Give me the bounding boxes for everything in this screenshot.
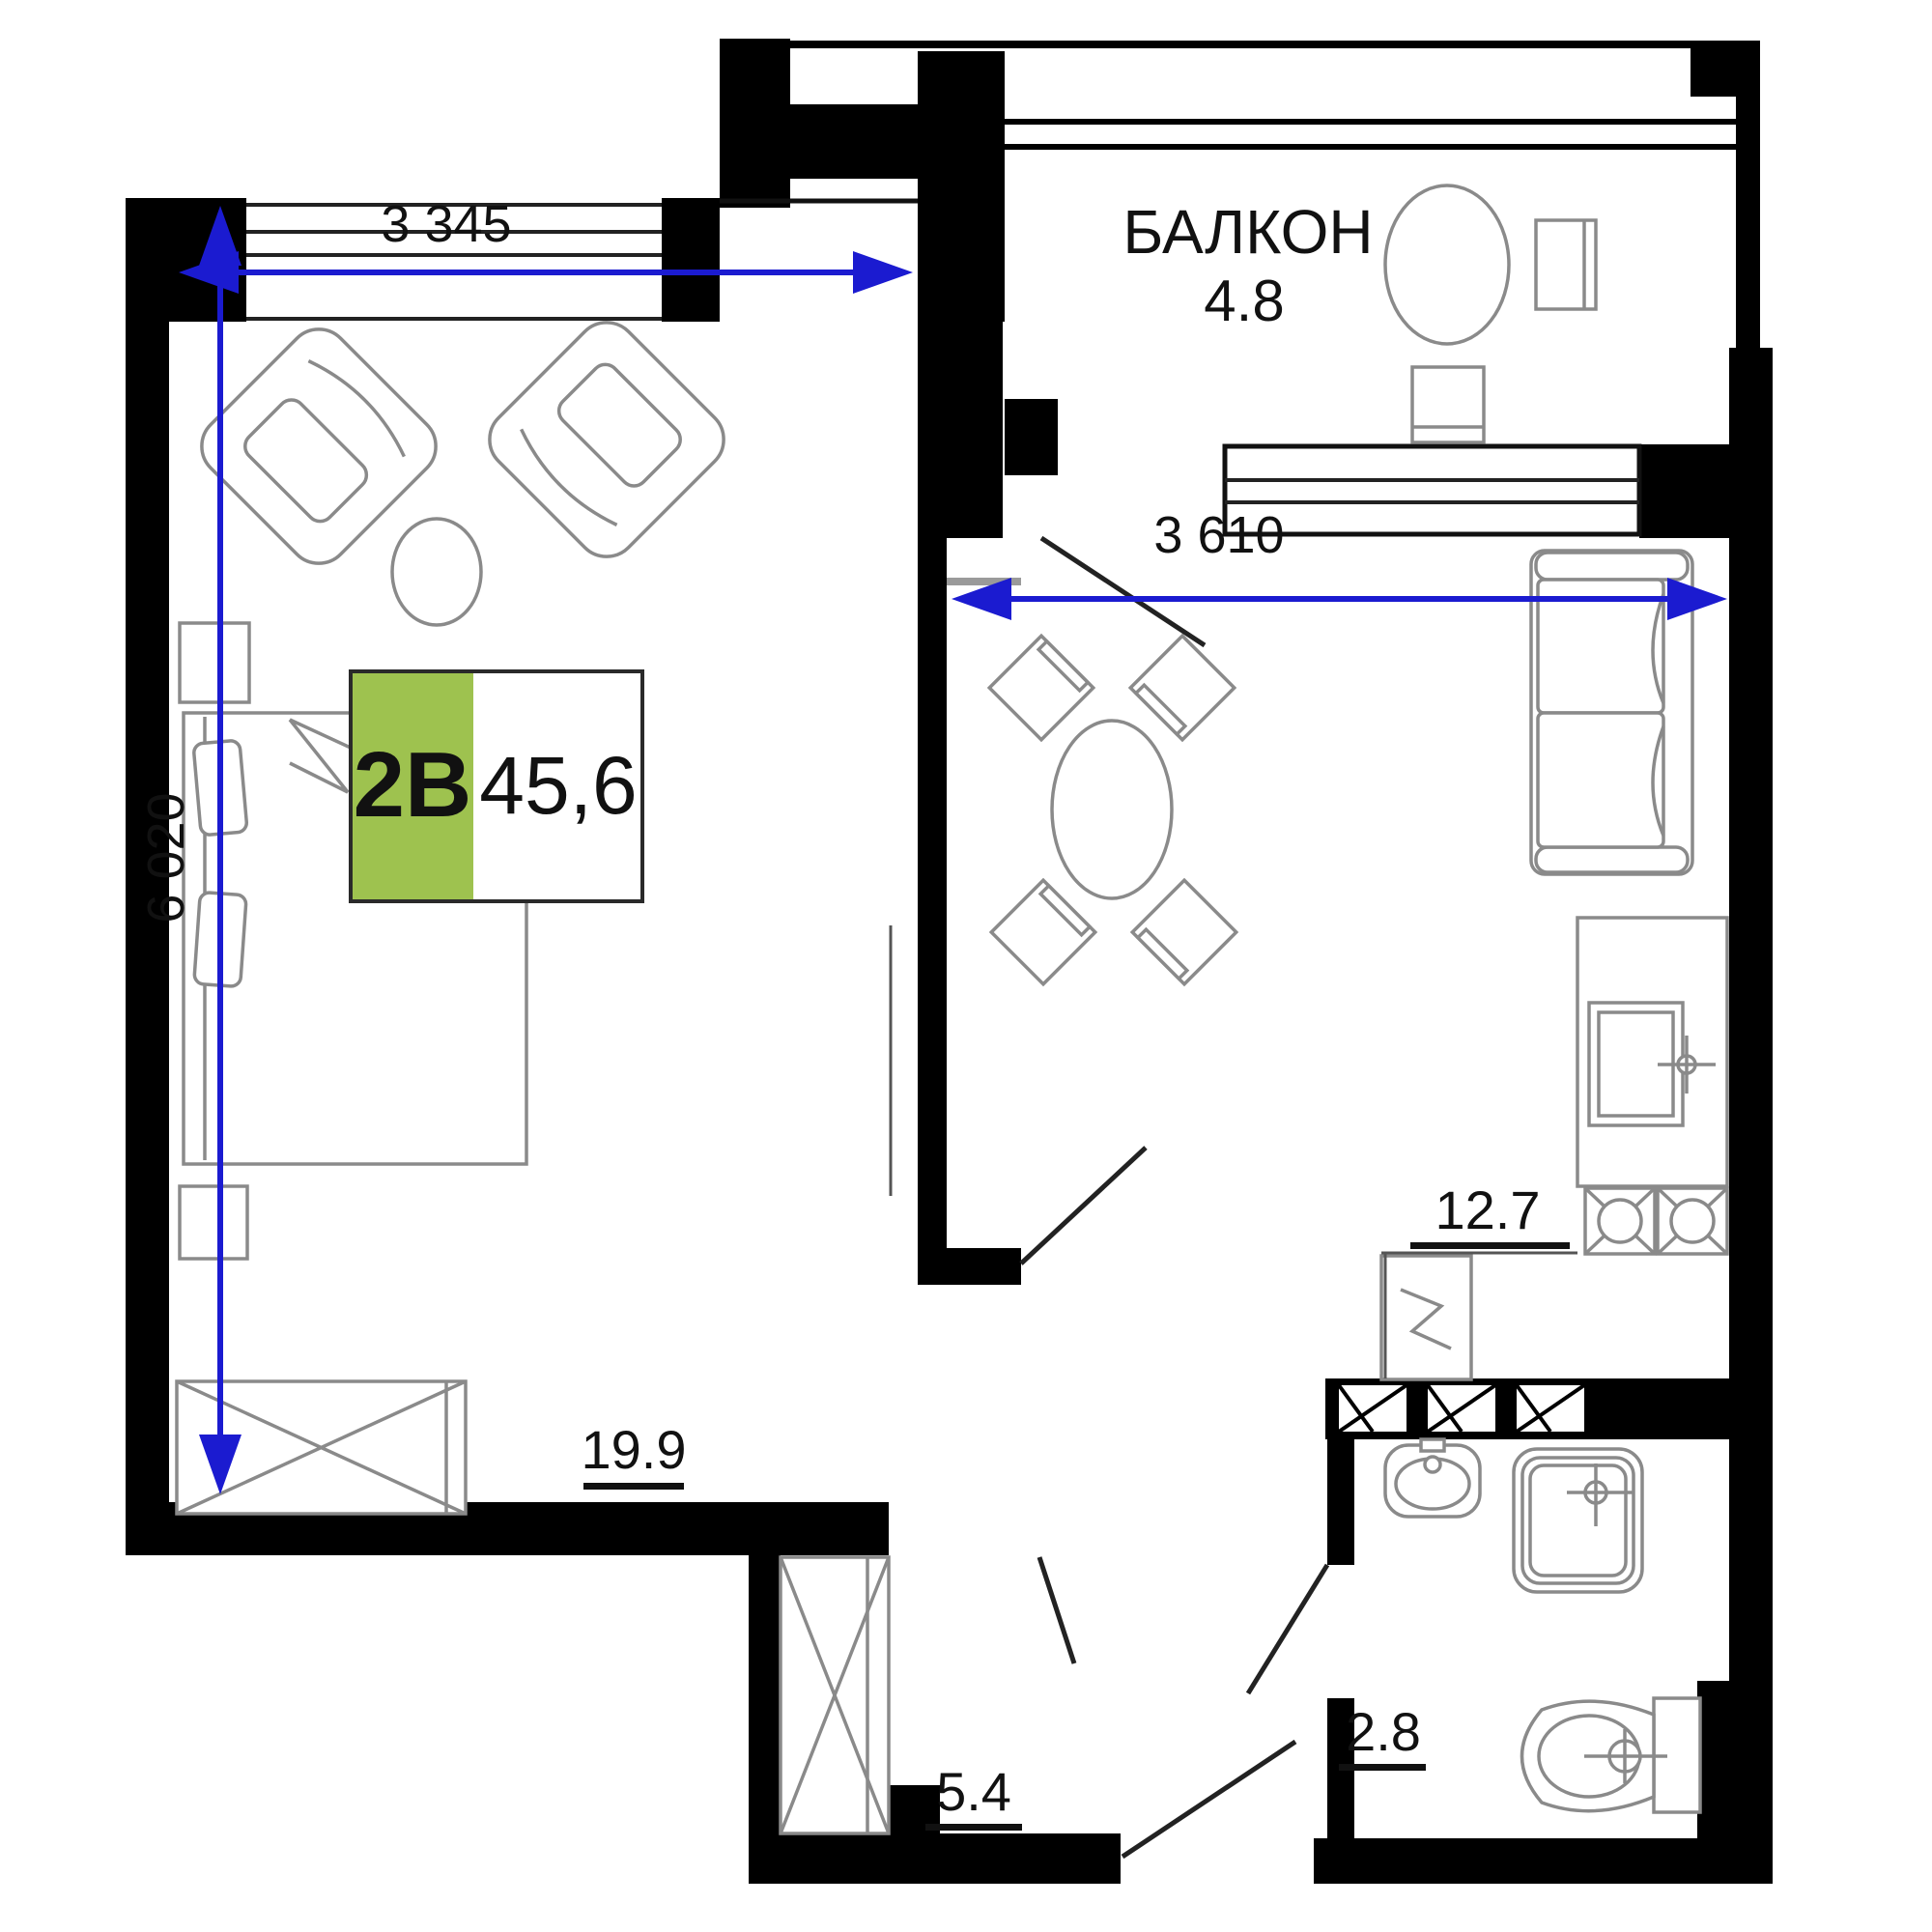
living-area-underline [583, 1483, 684, 1490]
living-room-furniture [177, 310, 736, 1514]
wall-balcony-connector [790, 104, 918, 179]
wall-living-hall [918, 538, 947, 1248]
wall-wc-left-top [1327, 1439, 1354, 1565]
balcony-furniture [1385, 185, 1596, 442]
unit-area-label: 45,6 [479, 740, 638, 831]
unit-type-label: 2B [354, 733, 472, 837]
bathroom-area-text: 2.8 [1346, 1701, 1421, 1762]
kitchen-furniture [989, 551, 1727, 1379]
living-area-text: 19.9 [582, 1419, 687, 1480]
fridge [1381, 1256, 1471, 1379]
hall-area-underline [925, 1824, 1022, 1831]
side-table [392, 519, 481, 625]
hall-closet [781, 1557, 889, 1833]
armchair [477, 310, 737, 570]
dim-kitchen-width-text: 3 610 [1153, 506, 1284, 564]
bathroom-fixtures [1385, 1439, 1700, 1812]
window-balcony-kitchen [1225, 446, 1639, 534]
entrance-door-leaf [1122, 1742, 1295, 1857]
wall-balcony-corner [1690, 41, 1760, 97]
stove [1585, 1188, 1727, 1254]
balcony-chair [1536, 220, 1596, 309]
hall-door-leaf [1039, 1557, 1074, 1663]
bathroom-area-label: 2.8 [1339, 1701, 1426, 1771]
dining-chair [991, 880, 1094, 983]
living-area-label: 19.9 [582, 1419, 687, 1490]
wall-living-balcony-pier [918, 319, 1003, 538]
unit-card: 2B 45,6 [351, 671, 642, 901]
living-door-leaf [1021, 1148, 1146, 1264]
dim-living-width-text: 3 345 [381, 195, 511, 253]
hall-area-label: 5.4 [925, 1761, 1022, 1831]
balcony-name-label: БАЛКОН [1122, 197, 1373, 267]
dining-chair [1130, 636, 1234, 739]
wall-right [1729, 348, 1773, 1681]
wall-living-door-jamb [918, 1248, 1021, 1285]
kitchen-area-underline [1410, 1242, 1570, 1249]
nightstand [180, 1186, 247, 1259]
wall-top-pier-mid [662, 198, 720, 322]
wash-basin [1385, 1439, 1480, 1517]
balcony-table [1385, 185, 1509, 344]
wall-right-bottom-step [1697, 1681, 1773, 1840]
nightstand [180, 623, 249, 702]
kitchen-area-text: 12.7 [1435, 1179, 1541, 1240]
balcony-chair [1412, 367, 1484, 442]
bathroom-door-leaf [1248, 1565, 1327, 1693]
dining-chair [1132, 880, 1236, 983]
floor-plan: 2B 45,6 БАЛКОН 4.8 [0, 0, 1932, 1932]
wall-balcony-left-bar [720, 39, 790, 208]
vent-shafts [1339, 1385, 1584, 1432]
bathroom-area-underline [1339, 1764, 1426, 1771]
dining-table [1052, 721, 1172, 898]
hall-area-text: 5.4 [936, 1761, 1011, 1822]
wall-balcony-window-pier [1639, 444, 1729, 538]
wall-living-balcony-upper [918, 51, 1005, 322]
toilet [1522, 1698, 1701, 1812]
wall-hall-bottom [749, 1833, 1121, 1884]
wall-bottom-right [1314, 1838, 1773, 1884]
dining-chair [989, 636, 1093, 739]
kitchen-sink [1577, 918, 1727, 1186]
kitchen-area-label: 12.7 [1410, 1179, 1570, 1249]
wall-balcony-door-jut [1005, 399, 1058, 475]
shower [1514, 1449, 1642, 1592]
wall-balcony-right [1736, 97, 1760, 348]
dim-living-height-text: 6 020 [137, 792, 195, 923]
dining-set [989, 636, 1236, 983]
balcony-area-label: 4.8 [1204, 269, 1284, 333]
